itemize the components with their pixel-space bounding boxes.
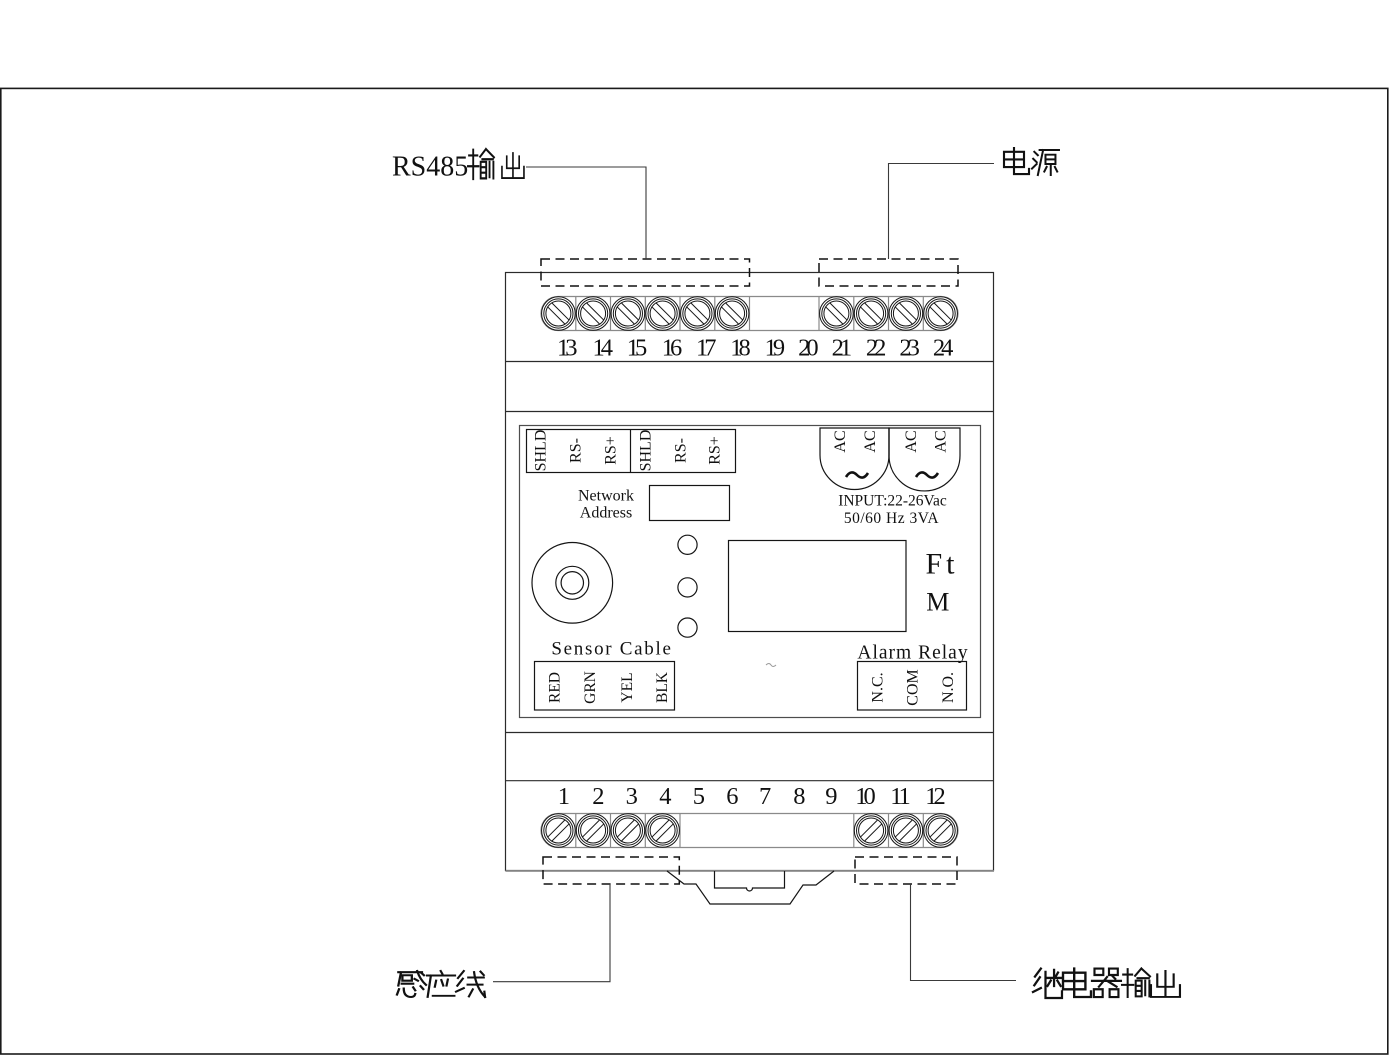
svg-text:9: 9 bbox=[825, 783, 837, 810]
svg-text:AC: AC bbox=[832, 430, 849, 452]
svg-text:2: 2 bbox=[592, 783, 604, 810]
svg-text:AC: AC bbox=[862, 430, 879, 452]
svg-text:1: 1 bbox=[558, 783, 570, 810]
svg-text:22: 22 bbox=[866, 335, 887, 362]
svg-text:GRN: GRN bbox=[582, 671, 599, 704]
svg-text:16: 16 bbox=[662, 335, 683, 362]
svg-text:RS+: RS+ bbox=[707, 436, 724, 465]
svg-text:Alarm Relay: Alarm Relay bbox=[857, 643, 968, 664]
svg-text:SHLD: SHLD bbox=[533, 430, 550, 472]
svg-text:14: 14 bbox=[593, 335, 614, 362]
svg-text:M: M bbox=[926, 588, 949, 617]
svg-text:12: 12 bbox=[925, 783, 946, 810]
svg-text:AC: AC bbox=[933, 430, 950, 452]
svg-text:Network: Network bbox=[578, 488, 634, 505]
svg-text:RS-: RS- bbox=[568, 438, 585, 463]
svg-text:20: 20 bbox=[798, 335, 819, 362]
svg-text:23: 23 bbox=[899, 335, 920, 362]
svg-text:Ft: Ft bbox=[926, 548, 959, 581]
svg-text:AC: AC bbox=[903, 430, 920, 452]
svg-text:COM: COM bbox=[905, 669, 922, 705]
svg-text:7: 7 bbox=[759, 783, 771, 810]
svg-text:8: 8 bbox=[793, 783, 805, 810]
svg-text:RED: RED bbox=[547, 672, 564, 703]
svg-text:50/60 Hz 3VA: 50/60 Hz 3VA bbox=[844, 510, 940, 527]
svg-text:YEL: YEL bbox=[619, 672, 636, 702]
svg-text:RS+: RS+ bbox=[603, 436, 620, 465]
svg-text:13: 13 bbox=[557, 335, 578, 362]
svg-text:SHLD: SHLD bbox=[638, 430, 655, 472]
svg-text:3: 3 bbox=[626, 783, 638, 810]
svg-text:RS-: RS- bbox=[673, 438, 690, 463]
svg-text:15: 15 bbox=[627, 335, 648, 362]
svg-text:21: 21 bbox=[832, 335, 853, 362]
svg-text:11: 11 bbox=[890, 783, 911, 810]
svg-text:19: 19 bbox=[765, 335, 786, 362]
svg-text:18: 18 bbox=[730, 335, 751, 362]
svg-text:5: 5 bbox=[693, 783, 705, 810]
svg-text:17: 17 bbox=[696, 335, 717, 362]
svg-text:4: 4 bbox=[659, 783, 671, 810]
svg-text:24: 24 bbox=[933, 335, 954, 362]
svg-text:Address: Address bbox=[580, 505, 632, 522]
svg-text:6: 6 bbox=[726, 783, 738, 810]
svg-text:RS485: RS485 bbox=[392, 152, 468, 183]
svg-text:Sensor Cable: Sensor Cable bbox=[551, 639, 672, 660]
svg-text:INPUT:22-26Vac: INPUT:22-26Vac bbox=[838, 493, 947, 510]
svg-text:10: 10 bbox=[855, 783, 876, 810]
svg-text:N.O.: N.O. bbox=[940, 672, 957, 703]
svg-text:BLK: BLK bbox=[654, 671, 671, 703]
svg-text:N.C.: N.C. bbox=[870, 672, 887, 702]
